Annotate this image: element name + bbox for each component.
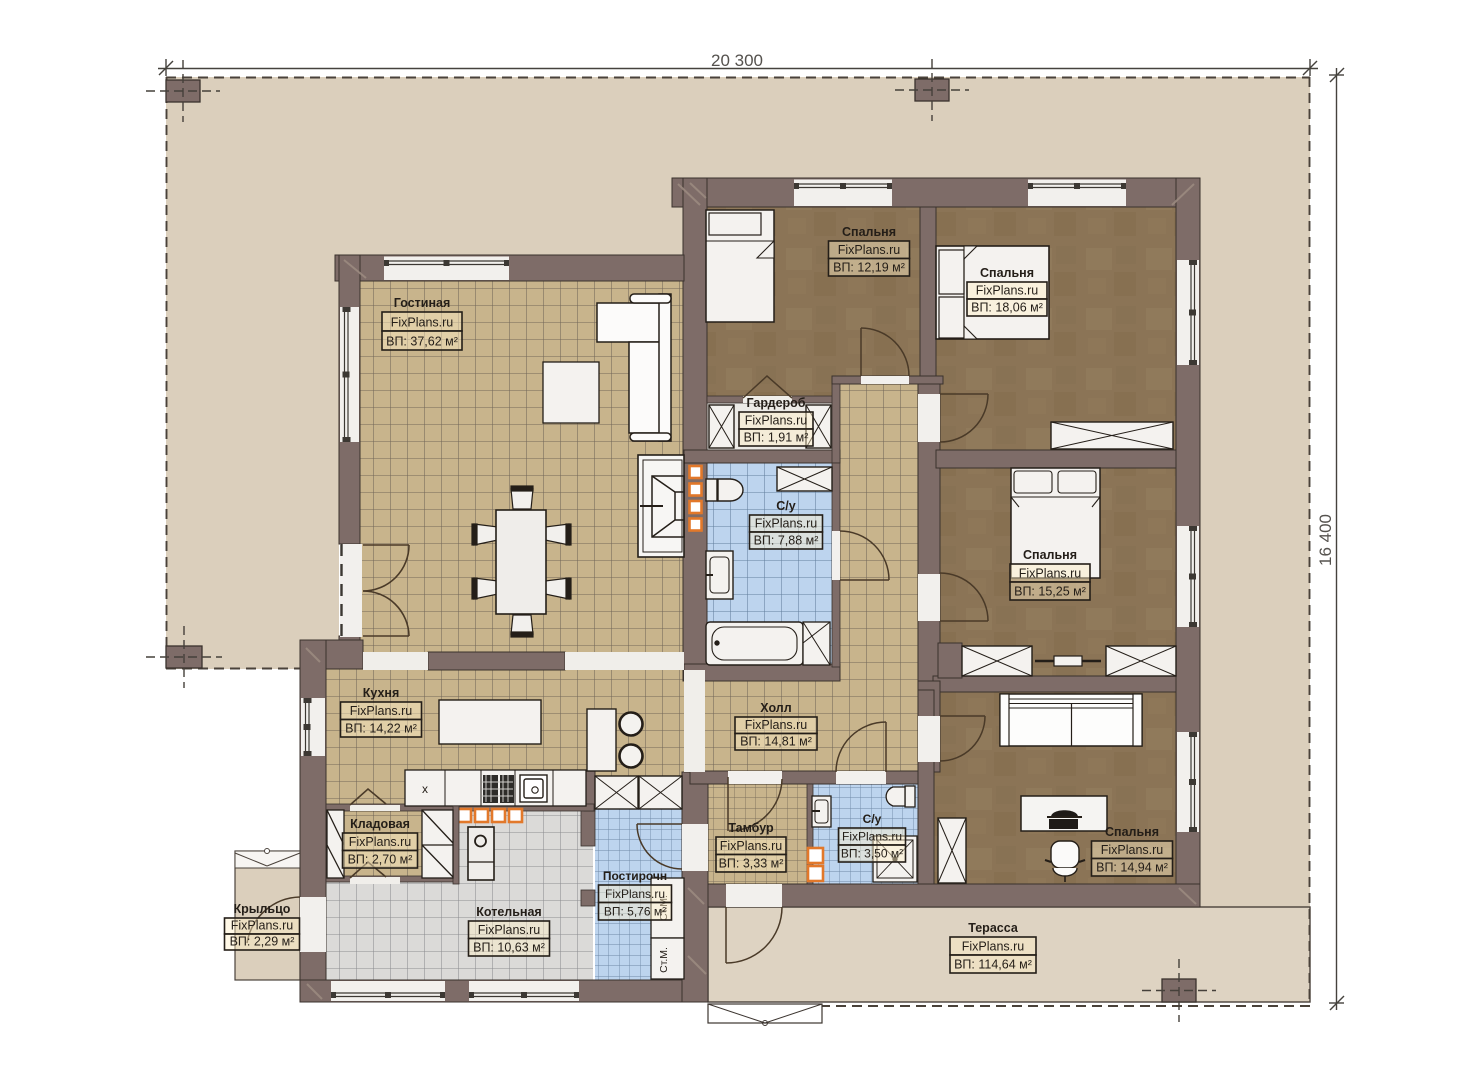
svg-text:ВП: 5,76 м²: ВП: 5,76 м² bbox=[604, 905, 666, 919]
svg-text:ВП: 1,91 м²: ВП: 1,91 м² bbox=[744, 431, 809, 445]
svg-text:Кладовая: Кладовая bbox=[350, 817, 410, 831]
svg-text:FixPlans.ru: FixPlans.ru bbox=[745, 718, 808, 732]
svg-text:ВП: 2,70 м²: ВП: 2,70 м² bbox=[348, 853, 413, 867]
svg-text:Спальня: Спальня bbox=[842, 225, 896, 239]
svg-text:FixPlans.ru: FixPlans.ru bbox=[720, 839, 783, 853]
svg-text:Ст.М.: Ст.М. bbox=[658, 947, 670, 973]
svg-text:Крыльцо: Крыльцо bbox=[234, 902, 291, 916]
svg-text:Терасса: Терасса bbox=[968, 921, 1019, 935]
svg-text:Спальня: Спальня bbox=[1023, 548, 1077, 562]
svg-text:FixPlans.ru: FixPlans.ru bbox=[962, 940, 1025, 954]
svg-text:FixPlans.ru: FixPlans.ru bbox=[349, 835, 412, 849]
svg-text:ВП: 14,81 м²: ВП: 14,81 м² bbox=[740, 735, 812, 749]
svg-text:Котельная: Котельная bbox=[476, 905, 541, 919]
svg-text:ВП: 2,29 м²: ВП: 2,29 м² bbox=[230, 935, 295, 949]
svg-text:FixPlans.ru: FixPlans.ru bbox=[842, 830, 902, 844]
svg-text:С/у: С/у bbox=[776, 499, 796, 513]
svg-text:FixPlans.ru: FixPlans.ru bbox=[838, 243, 901, 257]
svg-text:Гардероб: Гардероб bbox=[746, 396, 805, 410]
svg-text:16 400: 16 400 bbox=[1316, 514, 1335, 566]
svg-text:ВП: 114,64 м²: ВП: 114,64 м² bbox=[954, 958, 1032, 972]
svg-text:ВП: 15,25 м²: ВП: 15,25 м² bbox=[1014, 585, 1086, 599]
svg-text:ВП: 10,63 м²: ВП: 10,63 м² bbox=[473, 941, 545, 955]
svg-text:20 300: 20 300 bbox=[711, 51, 763, 70]
svg-text:ВП: 3,33 м²: ВП: 3,33 м² bbox=[719, 857, 784, 871]
svg-text:Тамбур: Тамбур bbox=[728, 821, 774, 835]
svg-text:FixPlans.ru: FixPlans.ru bbox=[976, 284, 1039, 298]
svg-text:Гостиная: Гостиная bbox=[394, 296, 451, 310]
svg-text:Холл: Холл bbox=[760, 701, 791, 715]
svg-text:ВП: 7,88 м²: ВП: 7,88 м² bbox=[754, 534, 819, 548]
svg-text:FixPlans.ru: FixPlans.ru bbox=[755, 517, 818, 531]
svg-text:С/у: С/у bbox=[863, 812, 882, 826]
svg-text:ВП: 14,22 м²: ВП: 14,22 м² bbox=[345, 722, 417, 736]
svg-text:FixPlans.ru: FixPlans.ru bbox=[745, 414, 808, 428]
svg-text:FixPlans.ru: FixPlans.ru bbox=[478, 923, 541, 937]
svg-text:Постирочн: Постирочн bbox=[603, 869, 667, 883]
svg-text:ВП: 18,06 м²: ВП: 18,06 м² bbox=[971, 301, 1043, 315]
svg-text:FixPlans.ru: FixPlans.ru bbox=[391, 316, 454, 330]
svg-text:Спальня: Спальня bbox=[980, 266, 1034, 280]
svg-text:FixPlans.ru: FixPlans.ru bbox=[1019, 567, 1082, 581]
svg-text:ВП: 12,19 м²: ВП: 12,19 м² bbox=[833, 261, 905, 275]
svg-text:х: х bbox=[422, 782, 428, 796]
svg-text:FixPlans.ru: FixPlans.ru bbox=[1101, 843, 1164, 857]
svg-text:ВП: 37,62 м²: ВП: 37,62 м² bbox=[386, 335, 458, 349]
svg-text:Спальня: Спальня bbox=[1105, 825, 1159, 839]
svg-text:ВП: 14,94 м²: ВП: 14,94 м² bbox=[1096, 861, 1168, 875]
svg-text:Кухня: Кухня bbox=[363, 686, 400, 700]
svg-text:ВП: 3,50 м²: ВП: 3,50 м² bbox=[841, 847, 903, 861]
svg-text:FixPlans.ru: FixPlans.ru bbox=[605, 887, 665, 901]
svg-text:FixPlans.ru: FixPlans.ru bbox=[231, 919, 294, 933]
svg-text:FixPlans.ru: FixPlans.ru bbox=[350, 704, 413, 718]
